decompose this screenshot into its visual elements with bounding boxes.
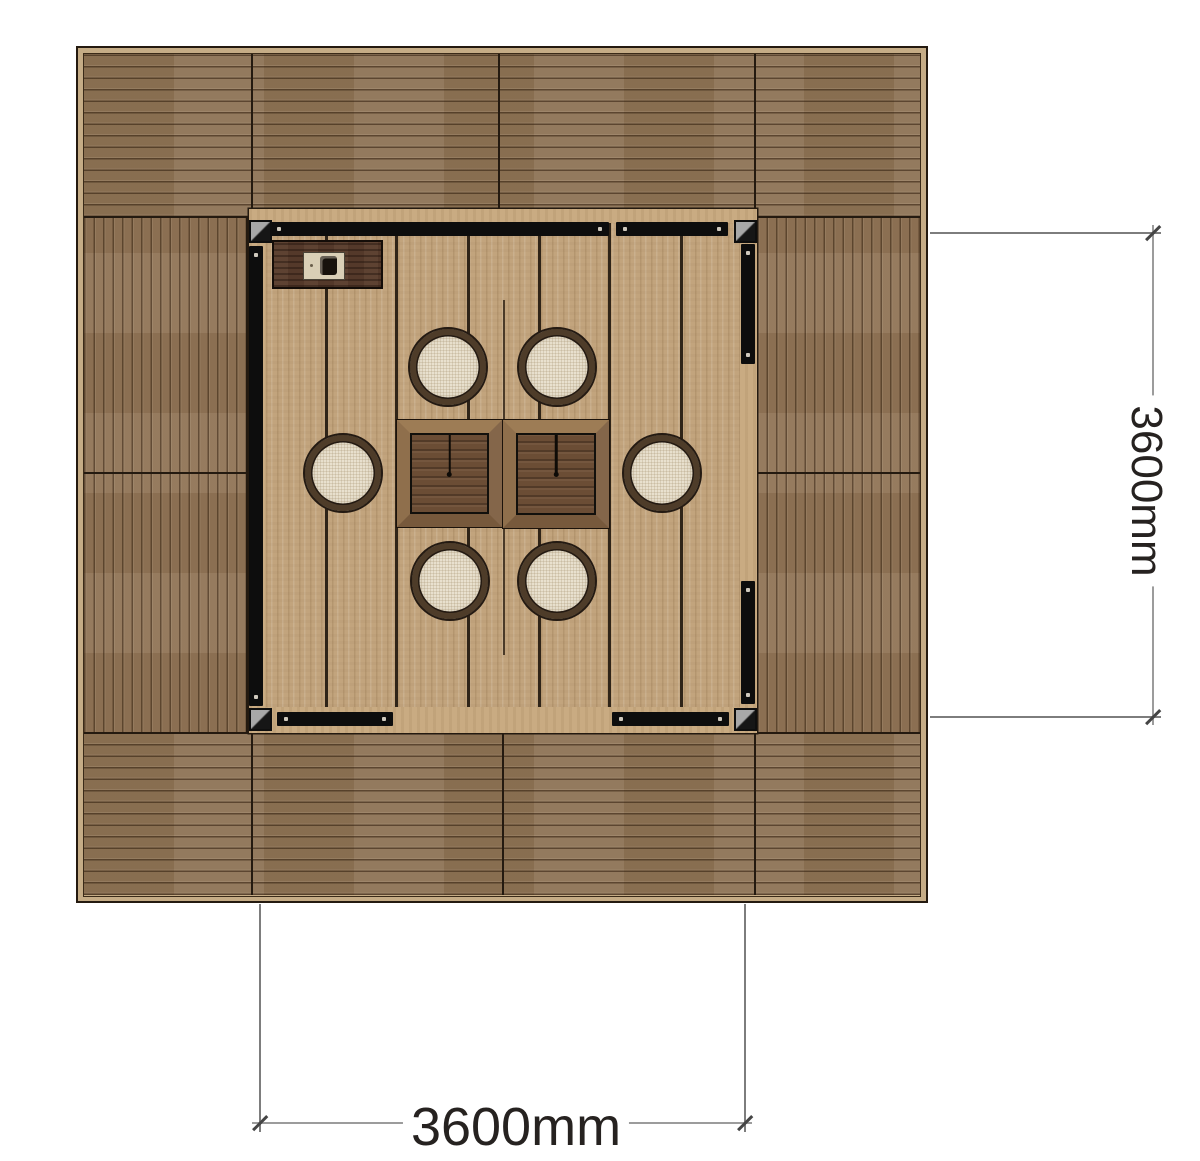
frame-beam-left: [249, 246, 263, 706]
deck-divider: [498, 54, 500, 217]
stool: [517, 327, 597, 407]
corner-bracket: [734, 708, 757, 731]
table: [503, 420, 609, 528]
frame-beam-top: [270, 222, 609, 236]
extension-line: [930, 716, 1161, 718]
stool: [410, 541, 490, 621]
extension-line: [930, 232, 1161, 234]
deck-divider: [251, 733, 253, 895]
extension-line: [259, 904, 261, 1132]
table-umbrella-slot: [448, 435, 451, 475]
frame-beam-bottom: [277, 712, 393, 726]
corner-bracket: [249, 220, 272, 243]
corner-bracket: [734, 220, 757, 243]
corner-bracket: [249, 708, 272, 731]
console-plate: [303, 252, 345, 280]
deck-divider: [84, 472, 247, 474]
deck-band-top: [84, 54, 920, 217]
dimension-label-right: 3600mm: [1124, 395, 1168, 586]
table-umbrella-slot: [555, 435, 558, 475]
stool: [408, 327, 488, 407]
band-boundary-left: [246, 217, 248, 733]
frame-beam-right: [741, 581, 755, 704]
table: [397, 420, 502, 527]
deck-band-right: [757, 217, 920, 733]
frame-beam-bottom: [612, 712, 729, 726]
deck-divider: [754, 733, 756, 895]
stool: [517, 541, 597, 621]
deck-band-left: [84, 217, 247, 733]
deck-divider: [757, 472, 920, 474]
stool: [622, 433, 702, 513]
console-knob-icon: [320, 256, 337, 275]
deck-plan-canvas: 3600mm 3600mm: [0, 0, 1200, 1161]
extension-line: [744, 904, 746, 1132]
deck-divider: [502, 733, 504, 895]
stool: [303, 433, 383, 513]
console-screw-dot: [310, 264, 313, 267]
frame-beam-right: [741, 244, 755, 364]
deck-divider: [251, 54, 253, 217]
deck-divider: [754, 54, 756, 217]
frame-beam-top: [616, 222, 728, 236]
dimension-label-bottom: 3600mm: [403, 1100, 629, 1154]
console-box: [272, 240, 383, 289]
